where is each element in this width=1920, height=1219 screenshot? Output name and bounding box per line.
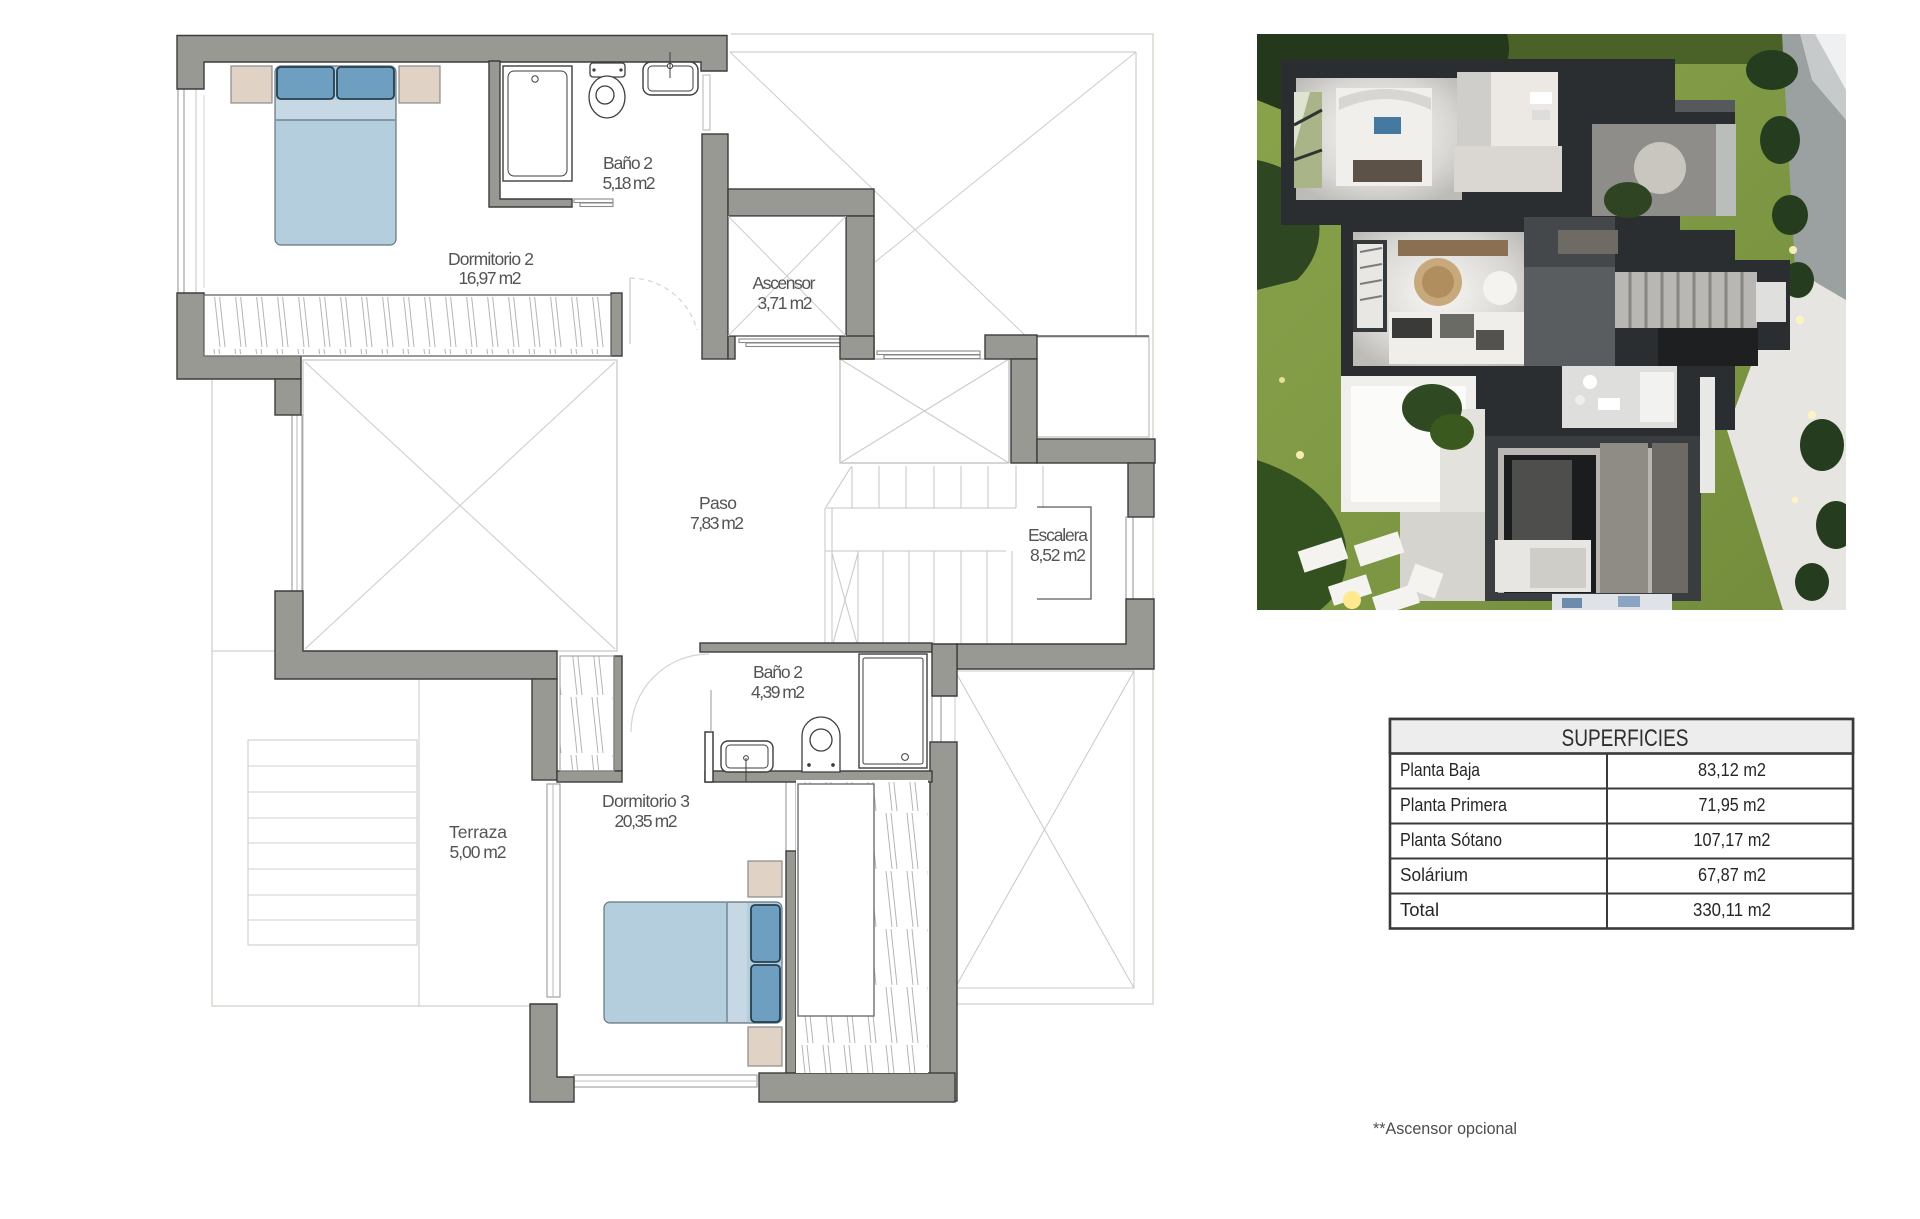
svg-text:Escalera: Escalera — [1028, 525, 1088, 545]
svg-text:71,95 m2: 71,95 m2 — [1699, 794, 1766, 815]
svg-text:7,83 m2: 7,83 m2 — [690, 513, 744, 533]
svg-text:4,39 m2: 4,39 m2 — [751, 682, 805, 702]
svg-text:107,17 m2: 107,17 m2 — [1694, 829, 1771, 850]
svg-text:Baño 2: Baño 2 — [753, 662, 803, 682]
svg-text:67,87 m2: 67,87 m2 — [1698, 864, 1766, 885]
svg-text:Dormitorio 2: Dormitorio 2 — [448, 249, 534, 269]
svg-text:Planta Baja: Planta Baja — [1400, 759, 1481, 780]
svg-text:16,97 m2: 16,97 m2 — [459, 268, 522, 288]
svg-text:Paso: Paso — [699, 493, 737, 513]
svg-text:Dormitorio 3: Dormitorio 3 — [602, 791, 690, 811]
svg-text:83,12 m2: 83,12 m2 — [1698, 759, 1766, 780]
svg-text:8,52 m2: 8,52 m2 — [1030, 545, 1086, 565]
svg-text:5,00 m2: 5,00 m2 — [450, 842, 507, 862]
svg-text:Planta Primera: Planta Primera — [1400, 794, 1508, 815]
svg-text:Total: Total — [1400, 899, 1439, 920]
svg-text:Solárium: Solárium — [1400, 864, 1468, 885]
svg-text:Terraza: Terraza — [449, 822, 507, 842]
svg-text:Planta Sótano: Planta Sótano — [1400, 829, 1502, 850]
svg-text:SUPERFICIES: SUPERFICIES — [1562, 725, 1689, 752]
svg-text:5,18 m2: 5,18 m2 — [603, 173, 656, 193]
svg-text:Baño 2: Baño 2 — [603, 153, 653, 173]
svg-text:20,35 m2: 20,35 m2 — [615, 811, 678, 831]
svg-text:Ascensor: Ascensor — [753, 273, 816, 293]
svg-text:**Ascensor opcional: **Ascensor opcional — [1373, 1120, 1517, 1138]
svg-text:3,71 m2: 3,71 m2 — [758, 293, 813, 313]
svg-text:330,11 m2: 330,11 m2 — [1693, 899, 1771, 920]
